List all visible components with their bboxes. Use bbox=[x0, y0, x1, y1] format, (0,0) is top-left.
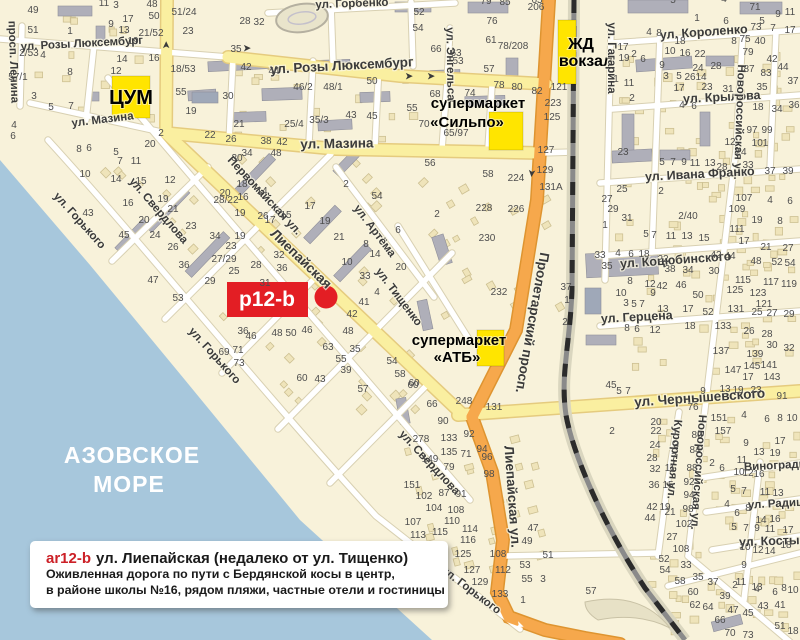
house-number: 10 bbox=[739, 542, 751, 553]
house-number: 7 bbox=[670, 157, 676, 168]
house-number: 20 bbox=[144, 139, 156, 150]
house-number: 4 bbox=[724, 499, 730, 510]
house bbox=[697, 182, 702, 189]
house-number: 4 bbox=[646, 27, 652, 38]
house-number: 44 bbox=[268, 66, 280, 77]
house-number: 21 bbox=[167, 204, 179, 215]
house-number: 4 bbox=[721, 0, 727, 5]
house-number: 71 bbox=[232, 345, 244, 356]
house-number: 14 bbox=[110, 174, 122, 185]
house-number: 80 bbox=[691, 430, 703, 441]
house-number: 24 bbox=[649, 440, 661, 451]
house-number: 2 bbox=[434, 209, 440, 220]
house bbox=[632, 363, 638, 370]
house-number: 4 bbox=[741, 410, 747, 421]
house-number: 232 bbox=[491, 287, 508, 298]
house-number: 112 bbox=[495, 565, 511, 576]
house-number: 42 bbox=[766, 54, 778, 65]
house-number: 2 bbox=[631, 49, 637, 60]
house-number: 10 bbox=[79, 169, 91, 180]
house-number: 61 bbox=[485, 35, 497, 46]
house-number: 6 bbox=[772, 587, 778, 598]
house-number: 51 bbox=[542, 550, 554, 561]
house-number: 14 bbox=[256, 186, 268, 197]
house-number: 18 bbox=[638, 249, 650, 260]
house-number: 16 bbox=[753, 469, 765, 480]
house-number: 151 bbox=[711, 413, 728, 424]
house-number: 99 bbox=[761, 125, 773, 136]
house-number: 11 bbox=[760, 487, 771, 498]
house-number: 8 bbox=[777, 216, 783, 227]
house-number: 133 bbox=[441, 433, 458, 444]
house-number: 58 bbox=[482, 169, 494, 180]
house-number: 119 bbox=[781, 279, 797, 290]
house-number: 2 bbox=[343, 179, 349, 190]
house-number: 74 bbox=[464, 88, 476, 99]
house bbox=[670, 560, 678, 567]
house-number: 60 bbox=[687, 587, 699, 598]
house-number: 71 bbox=[460, 449, 472, 460]
house-number: 10 bbox=[664, 46, 676, 57]
house-number: 145 bbox=[744, 361, 761, 372]
house-number: 7 bbox=[639, 299, 645, 310]
house-number: 6 bbox=[787, 196, 793, 207]
house bbox=[786, 127, 794, 132]
house-number: 26 bbox=[225, 134, 237, 145]
house bbox=[531, 462, 539, 470]
house-number: 19 bbox=[769, 448, 781, 459]
house-number: 13 bbox=[681, 231, 693, 242]
house-number: 9 bbox=[681, 157, 687, 168]
house-number: 1 bbox=[694, 13, 700, 24]
house-number: 1 bbox=[520, 595, 526, 606]
house-number: 137 bbox=[713, 346, 730, 357]
house-number: 63 bbox=[322, 342, 334, 353]
house bbox=[729, 342, 738, 348]
caption-street: ул. Лиепайская (недалеко от ул. Тищенко) bbox=[96, 550, 408, 567]
house-number: 7 bbox=[770, 23, 776, 34]
one-way-arrow-icon: ➤ bbox=[427, 71, 435, 81]
house-number: 42 bbox=[656, 281, 668, 292]
house-number: 131 bbox=[486, 402, 503, 413]
house-number: 57 bbox=[585, 586, 597, 597]
house-number: 12 bbox=[164, 175, 176, 186]
house-number: 19 bbox=[185, 106, 197, 117]
house-number: 2 bbox=[158, 128, 164, 139]
map-canvas: ➤➤➤➤➤➤ ЦУМЖДвокзалсупермаркет«Сильпо»суп… bbox=[0, 0, 800, 640]
house-number: 50 bbox=[366, 76, 378, 87]
house-number: 34 bbox=[771, 104, 783, 115]
house-number: 18 bbox=[780, 540, 792, 551]
house-number: 42 bbox=[646, 502, 658, 513]
house-number: 23 bbox=[185, 221, 197, 232]
house-number: 43 bbox=[82, 208, 94, 219]
house-number: 5 bbox=[643, 229, 649, 240]
house-number: 43 bbox=[314, 374, 326, 385]
house-number: 9 bbox=[743, 438, 749, 449]
house bbox=[782, 134, 790, 141]
house-number: 46/2 bbox=[293, 82, 313, 93]
house-number: 33 bbox=[359, 271, 371, 282]
house-number: 8 bbox=[731, 36, 737, 47]
house bbox=[389, 113, 395, 119]
house-number: 46 bbox=[675, 280, 687, 291]
house-number: 29 bbox=[783, 309, 795, 320]
house-number: 98 bbox=[483, 469, 495, 480]
house-number: 54 bbox=[386, 356, 398, 367]
house-number: 111 bbox=[729, 224, 745, 235]
house bbox=[719, 185, 725, 191]
house-number: 107 bbox=[405, 517, 422, 528]
house-number: 133 bbox=[492, 589, 509, 600]
house bbox=[634, 338, 642, 346]
house-number: 30 bbox=[222, 91, 234, 102]
house-number: 23 bbox=[701, 82, 713, 93]
house-number: 108 bbox=[673, 544, 690, 555]
house bbox=[638, 347, 646, 352]
one-way-arrow-icon: ➤ bbox=[243, 43, 251, 53]
house-number: 7 bbox=[671, 452, 677, 463]
house-number: 4 bbox=[374, 287, 380, 298]
house-number: 9 bbox=[659, 60, 665, 71]
house bbox=[775, 227, 782, 235]
house-number: 9 bbox=[741, 560, 747, 571]
house-number: 35 bbox=[756, 82, 768, 93]
house bbox=[690, 616, 699, 623]
house-number: 48 bbox=[271, 328, 283, 339]
house-number: 47 bbox=[527, 523, 539, 534]
house-number: 2 bbox=[709, 458, 715, 469]
house-number: 4 bbox=[767, 195, 773, 206]
house-number: 33 bbox=[594, 250, 606, 261]
house-number: 6 bbox=[86, 143, 92, 154]
house-number: 41 bbox=[774, 600, 786, 611]
house-number: 76 bbox=[687, 402, 699, 413]
house-number: 117 bbox=[763, 277, 779, 288]
house-number: 224 bbox=[508, 173, 525, 184]
house-number: 5 bbox=[659, 157, 665, 168]
house-number: 42 bbox=[346, 309, 358, 320]
house-number: 28 bbox=[646, 453, 658, 464]
house-number: 66 bbox=[430, 44, 442, 55]
house-number: 28 bbox=[761, 329, 773, 340]
house-number: 278 bbox=[413, 434, 430, 445]
house-number: 25/4 bbox=[284, 119, 304, 130]
house-number: 33 bbox=[680, 560, 692, 571]
house bbox=[726, 68, 734, 76]
house-number: 48/1 bbox=[323, 82, 343, 93]
house-number: 26 bbox=[684, 72, 696, 83]
house-number: 53 bbox=[519, 560, 531, 571]
house-number: 48 bbox=[750, 256, 762, 267]
house-number: 6 bbox=[764, 414, 770, 425]
house-number: 17 bbox=[617, 42, 629, 53]
house-number: 66 bbox=[426, 399, 438, 410]
house-number: 19 bbox=[732, 385, 744, 396]
house-number: 129 bbox=[472, 577, 489, 588]
house-number: 62 bbox=[689, 600, 701, 611]
house-number: 16 bbox=[122, 198, 134, 209]
house-number: 13 bbox=[657, 304, 669, 315]
house-number: 66 bbox=[714, 615, 726, 626]
house-number: 47 bbox=[147, 275, 159, 286]
house-number: 65 bbox=[531, 0, 543, 6]
house-number: 6 bbox=[640, 54, 646, 65]
house-number: 15 bbox=[280, 210, 292, 221]
house-number: 4 bbox=[754, 584, 760, 595]
house-number: 3 bbox=[31, 91, 37, 102]
building bbox=[58, 6, 92, 16]
house-number: 47 bbox=[727, 605, 739, 616]
house-number: 35 bbox=[230, 44, 242, 55]
poi-label-tsum: ЦУМ bbox=[109, 87, 153, 109]
house-number: 248 bbox=[456, 396, 473, 407]
house-number: 25 bbox=[616, 184, 628, 195]
house-number: 36 bbox=[178, 260, 190, 271]
house-number: 1 bbox=[672, 427, 678, 438]
house-number: 39 bbox=[782, 166, 794, 177]
house-number: 56 bbox=[424, 158, 436, 169]
house-number: 39 bbox=[340, 365, 352, 376]
house-number: 41 bbox=[358, 297, 370, 308]
house-number: 5 bbox=[731, 522, 737, 533]
house bbox=[755, 150, 762, 157]
house-number: 75 bbox=[739, 34, 751, 45]
house-number: 223 bbox=[545, 98, 562, 109]
road-minor bbox=[331, 6, 333, 62]
house-number: 17 bbox=[122, 14, 134, 25]
house-number: 16 bbox=[237, 192, 249, 203]
house-number: 18 bbox=[684, 321, 696, 332]
house bbox=[790, 217, 798, 223]
house bbox=[719, 602, 725, 608]
house-number: 101 bbox=[752, 138, 769, 149]
poi-label-railway-station: вокзал bbox=[559, 53, 613, 70]
house-number: 21 bbox=[664, 507, 676, 518]
house bbox=[769, 472, 775, 478]
house-number: 38 bbox=[664, 264, 676, 275]
house-number: 33 bbox=[742, 160, 754, 171]
house bbox=[794, 572, 800, 579]
billboard-caption-box: ar12-bул. Лиепайская (недалеко от ул. Ти… bbox=[30, 541, 448, 608]
house-number: 32 bbox=[783, 343, 795, 354]
house-number: 78/208 bbox=[498, 41, 529, 52]
house-number: 9 bbox=[108, 19, 114, 30]
house-number: 104 bbox=[426, 503, 443, 514]
house-number: 18 bbox=[236, 179, 248, 190]
house-number: 9 bbox=[700, 386, 706, 397]
house-number: 51/24 bbox=[171, 7, 196, 18]
sea-name-line1: АЗОВСКОЕ bbox=[64, 442, 200, 468]
house-number: 10 bbox=[341, 257, 353, 268]
house-number: 108 bbox=[490, 549, 507, 560]
house-number: 82 bbox=[531, 86, 543, 97]
house-number: 110 bbox=[444, 516, 460, 527]
house-number: 102 bbox=[416, 491, 433, 502]
house-number: 108 bbox=[448, 505, 465, 516]
house-number: 65/97 bbox=[443, 128, 468, 139]
house-number: 36 bbox=[648, 480, 660, 491]
house-number: 23 bbox=[750, 385, 762, 396]
house-number: 76 bbox=[486, 16, 498, 27]
house-number: 44 bbox=[777, 62, 789, 73]
house-number: 92 bbox=[463, 429, 475, 440]
house-number: 127 bbox=[538, 145, 555, 156]
house-number: 49 bbox=[27, 5, 39, 16]
house-number: 13 bbox=[704, 158, 716, 169]
house-number: 13 bbox=[772, 488, 784, 499]
house-number: 24 bbox=[735, 147, 747, 158]
house-number: 46 bbox=[245, 331, 257, 342]
house-number: 58 bbox=[394, 369, 406, 380]
house-number: 52 bbox=[702, 307, 714, 318]
house-number: 48 bbox=[342, 326, 354, 337]
one-way-arrow-icon: ➤ bbox=[405, 71, 413, 81]
house-number: 31 bbox=[722, 84, 734, 95]
house bbox=[728, 417, 735, 423]
house-number: 36 bbox=[276, 263, 288, 274]
house-number: 34 bbox=[209, 231, 221, 242]
house-number: 4 bbox=[615, 248, 621, 259]
house bbox=[69, 52, 74, 59]
house-number: 13 bbox=[118, 25, 130, 36]
house-number: 125 bbox=[455, 549, 472, 560]
house-number: 7 bbox=[741, 486, 747, 497]
house-number: 16 bbox=[679, 48, 691, 59]
house-number: 7 bbox=[117, 156, 123, 167]
house-number: 21/52 bbox=[138, 28, 163, 39]
house-number: 23 bbox=[225, 241, 237, 252]
house-number: 7 bbox=[743, 523, 749, 534]
house bbox=[790, 452, 796, 457]
house-number: 121 bbox=[551, 82, 568, 93]
house-number: 87 bbox=[438, 488, 450, 499]
house-number: 40 bbox=[754, 36, 766, 47]
house-number: 79 bbox=[443, 462, 455, 473]
house-number: 149 bbox=[422, 454, 439, 465]
house-number: 28 bbox=[239, 16, 251, 27]
house-number: 43 bbox=[757, 601, 769, 612]
house-number: 17 bbox=[673, 83, 685, 94]
house-number: 51 bbox=[27, 25, 39, 36]
house-number: 28 bbox=[250, 260, 262, 271]
house-number: 7 bbox=[625, 386, 631, 397]
house-number: 70 bbox=[724, 628, 736, 639]
house-number: 4 bbox=[40, 50, 46, 61]
poi-label-atb: «АТБ» bbox=[434, 349, 481, 366]
house bbox=[748, 597, 756, 604]
house-number: 28 bbox=[716, 162, 728, 173]
house-number: 42 bbox=[710, 250, 722, 261]
house-number: 8 bbox=[67, 67, 73, 78]
house-number: 11 bbox=[765, 524, 776, 535]
house-number: 15 bbox=[698, 233, 710, 244]
house bbox=[524, 480, 534, 489]
street-label: ул. Мазина bbox=[300, 135, 374, 151]
house-number: 91 bbox=[776, 391, 788, 402]
house-number: 27 bbox=[782, 243, 794, 254]
house-number: 4 bbox=[679, 100, 685, 111]
house-number: 8 bbox=[745, 503, 751, 514]
house bbox=[719, 151, 725, 158]
house-number: 114 bbox=[462, 524, 478, 535]
house-number: 13 bbox=[719, 384, 731, 395]
house-number: 30 bbox=[766, 340, 778, 351]
house-number: 17 bbox=[264, 215, 276, 226]
house-number: 135 bbox=[441, 447, 458, 458]
house-number: 45 bbox=[742, 608, 754, 619]
house-number: 37 bbox=[764, 166, 776, 177]
house-number: 52 bbox=[771, 257, 783, 268]
house-number: 2 bbox=[732, 580, 738, 591]
house-number: 87 bbox=[743, 64, 755, 75]
billboard-code: ar12-b bbox=[46, 550, 91, 567]
house bbox=[706, 295, 712, 302]
house-number: 1 bbox=[602, 220, 608, 231]
house-number: 35/3 bbox=[309, 115, 329, 126]
house-number: 43 bbox=[345, 110, 357, 121]
house bbox=[794, 432, 800, 440]
house-number: 23 bbox=[182, 26, 194, 37]
house-number: 2 bbox=[609, 426, 615, 437]
house bbox=[669, 592, 676, 599]
house-number: 70 bbox=[418, 119, 430, 130]
house-number: 125 bbox=[727, 285, 744, 296]
house-number: 8 bbox=[363, 239, 369, 250]
building bbox=[192, 92, 218, 103]
caption-line2: Оживленная дорога по пути с Бердянской к… bbox=[46, 567, 436, 583]
house-number: 6 bbox=[691, 101, 697, 112]
marker-label: p12-b bbox=[239, 288, 295, 311]
house-number: 49 bbox=[521, 536, 533, 547]
house-number: 5 bbox=[616, 386, 622, 397]
house-number: 19 bbox=[127, 36, 139, 47]
house-number: 3 bbox=[663, 71, 669, 82]
house-number: 29 bbox=[607, 204, 619, 215]
house-number: 6 bbox=[628, 249, 634, 260]
house-number: 16 bbox=[148, 53, 160, 64]
house-number: 131 bbox=[728, 304, 745, 315]
house-number: 5 bbox=[670, 0, 676, 6]
house-number: 12 bbox=[742, 468, 754, 479]
house bbox=[731, 327, 737, 332]
house-number: 8 bbox=[627, 276, 633, 287]
house-number: 3 bbox=[113, 0, 119, 11]
house-number: 6 bbox=[723, 16, 729, 27]
house-number: 94 bbox=[683, 490, 695, 501]
building bbox=[700, 112, 710, 146]
house-number: 147 bbox=[725, 365, 742, 376]
house-number: 52 bbox=[413, 7, 425, 18]
house bbox=[751, 187, 759, 193]
house-number: 1 bbox=[564, 295, 570, 306]
house-number: 123 bbox=[750, 288, 767, 299]
house-number: 34 bbox=[682, 265, 694, 276]
house-number: 5 bbox=[48, 102, 54, 113]
house-number: 3 bbox=[623, 298, 629, 309]
house-number: 31 bbox=[259, 278, 271, 289]
house-number: 12 bbox=[110, 66, 122, 77]
house-number: 71 bbox=[749, 2, 761, 13]
house-number: 53 bbox=[172, 293, 184, 304]
house-number: 32 bbox=[649, 464, 661, 475]
house-number: 54 bbox=[784, 258, 796, 269]
house-number: 60 bbox=[407, 380, 419, 391]
house-number: 113 bbox=[410, 530, 426, 541]
house-number: 15 bbox=[662, 480, 674, 491]
house-number: 36 bbox=[788, 100, 800, 111]
house-number: 27 bbox=[766, 308, 778, 319]
